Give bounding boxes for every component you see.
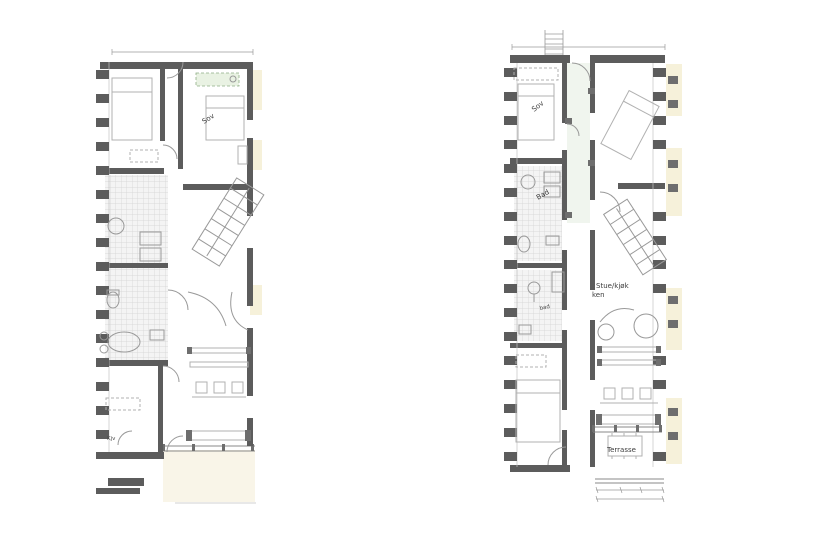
kitchen-counter-right	[597, 346, 661, 366]
living-label-line2: ken	[592, 291, 605, 299]
dining-chairs-right	[600, 388, 658, 403]
plan-right: Sov Bad bad	[504, 30, 682, 502]
room-label-living: Stue/kjøk ken	[592, 282, 631, 299]
staircase-left	[192, 178, 264, 266]
terrace-left-plan	[162, 444, 256, 503]
bed-top-left	[112, 78, 158, 162]
floorplan-canvas: Sov	[0, 0, 830, 555]
neighbor-building-patches	[666, 64, 682, 464]
dimension-line	[512, 44, 665, 50]
wardrobe-highlight	[196, 73, 239, 86]
bottom-room-right-plan	[516, 355, 566, 465]
room-label-bedroom-right-plan: Sov	[530, 99, 545, 113]
bench-right	[596, 414, 661, 425]
bench-left	[186, 430, 251, 441]
bathroom-small-tiles	[514, 270, 562, 341]
dimension-line	[112, 49, 253, 55]
bed-angled	[601, 91, 659, 160]
floorplan-drawing: Sov	[0, 0, 830, 555]
kitchen-counter-left	[187, 347, 251, 367]
bed-top-right	[206, 96, 247, 164]
corridor	[567, 63, 590, 223]
sofa-arcs-left	[188, 292, 248, 330]
room-label-kjv: Kjv	[107, 436, 116, 442]
plan-left: Sov	[96, 49, 264, 503]
exterior-stair-top	[545, 30, 563, 55]
room-label-bedroom-left-plan: Sov	[201, 112, 216, 126]
room-label-terrace: Terrasse	[606, 446, 636, 454]
dining-chairs-left	[192, 382, 246, 397]
sofa-arcs-right	[598, 309, 658, 341]
living-label-line1: Stue/kjøk	[596, 282, 630, 290]
dimension-lines-bottom	[596, 487, 664, 502]
